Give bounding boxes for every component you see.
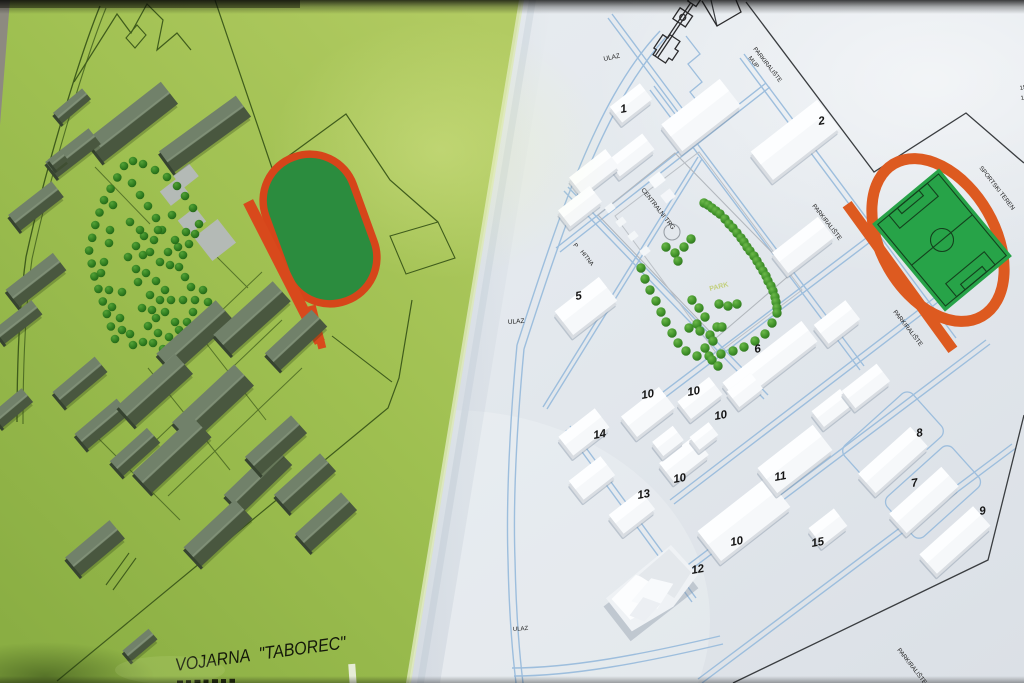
svg-text:16: 16 <box>1020 95 1024 102</box>
svg-text:ULAZ: ULAZ <box>508 318 525 326</box>
svg-text:11: 11 <box>773 470 787 484</box>
svg-text:15: 15 <box>1019 85 1024 92</box>
svg-text:ULAZ: ULAZ <box>513 626 529 633</box>
